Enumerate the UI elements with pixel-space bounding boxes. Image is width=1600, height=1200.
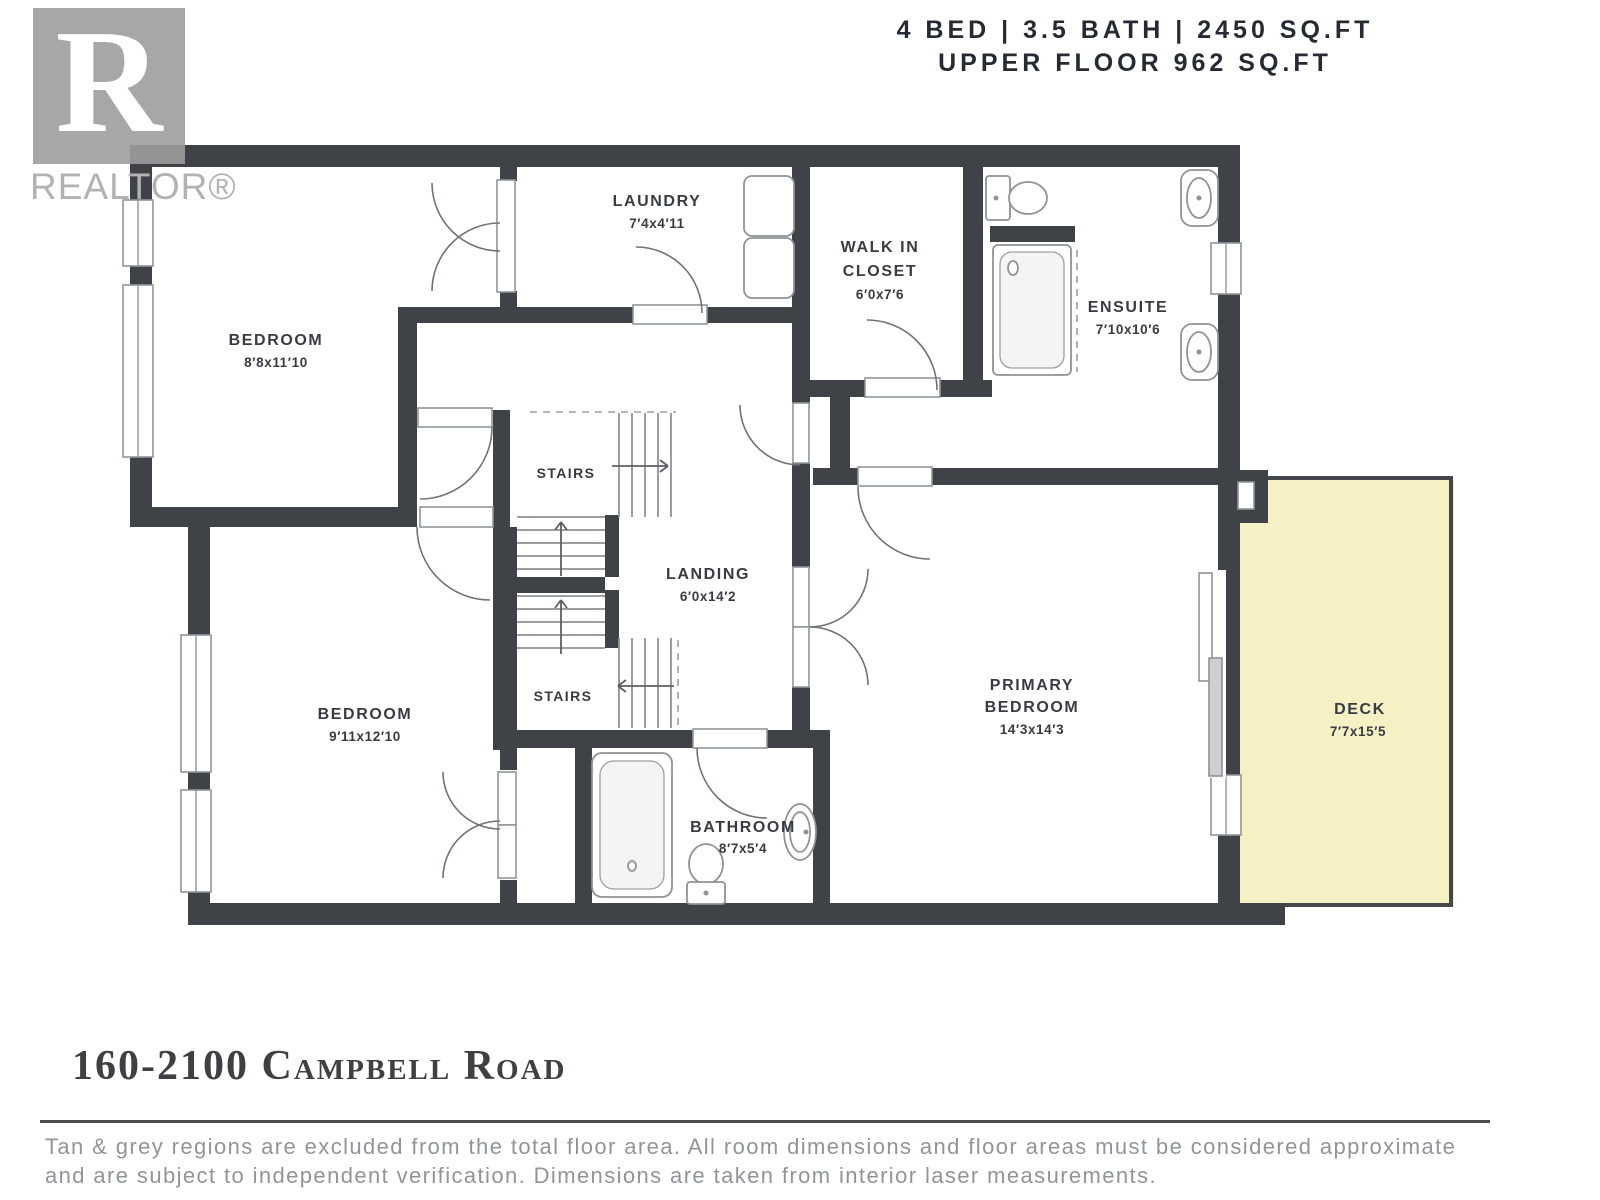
washer-dryer [744, 176, 794, 298]
label-primary-2: BEDROOM [985, 699, 1080, 716]
address-title: 160-2100 Campbell Road [72, 1042, 567, 1090]
label-deck: DECK [1334, 701, 1386, 718]
label-stairs-upper: STAIRS [537, 465, 596, 481]
disclaimer-line2: and are subject to independent verificat… [45, 1161, 1565, 1190]
dims-landing: 6′0x14′2 [680, 589, 736, 604]
label-bedroom-lower: BEDROOM [318, 706, 413, 723]
label-primary-1: PRIMARY [990, 677, 1074, 694]
ensuite-sink-2 [1181, 324, 1218, 380]
stairs-treads [517, 413, 671, 728]
windows [123, 200, 1254, 892]
label-walk-in-1: WALK IN [841, 239, 920, 256]
label-landing: LANDING [666, 566, 750, 583]
label-ensuite: ENSUITE [1088, 299, 1169, 316]
label-bathroom: BATHROOM [690, 819, 796, 836]
shower [993, 245, 1077, 375]
ensuite-sink-1 [1181, 170, 1218, 226]
label-laundry: LAUNDRY [613, 193, 702, 210]
sliding-door [1198, 570, 1226, 778]
dims-laundry: 7′4x4′11 [629, 216, 685, 231]
dims-bedroom-top: 8′8x11′10 [244, 355, 308, 370]
realtor-logo-letter: R [56, 8, 163, 156]
label-stairs-lower: STAIRS [534, 688, 593, 704]
footer-divider [40, 1120, 1490, 1123]
ensuite-toilet [986, 176, 1047, 220]
realtor-wordmark: REALTOR® [30, 166, 237, 208]
dims-ensuite: 7′10x10′6 [1096, 322, 1160, 337]
label-bedroom-top: BEDROOM [229, 332, 324, 349]
bathtub [592, 753, 672, 897]
fixtures [592, 170, 1218, 904]
dims-bathroom: 8′7x5′4 [719, 841, 767, 856]
deck-area [1240, 477, 1454, 907]
dims-primary: 14′3x14′3 [1000, 722, 1064, 737]
realtor-logo: R [33, 8, 185, 164]
floor-plan: BEDROOM 8′8x11′10 LAUNDRY 7′4x4′11 WALK … [0, 0, 1600, 1030]
dims-walk-in: 6′0x7′6 [856, 287, 904, 302]
dims-bedroom-lower: 9′11x12′10 [329, 729, 401, 744]
disclaimer: Tan & grey regions are excluded from the… [45, 1132, 1565, 1190]
dims-deck: 7′7x15′5 [1330, 724, 1386, 739]
stairs [517, 412, 678, 728]
walls [130, 145, 1285, 925]
label-walk-in-2: CLOSET [843, 263, 918, 280]
disclaimer-line1: Tan & grey regions are excluded from the… [45, 1132, 1565, 1161]
